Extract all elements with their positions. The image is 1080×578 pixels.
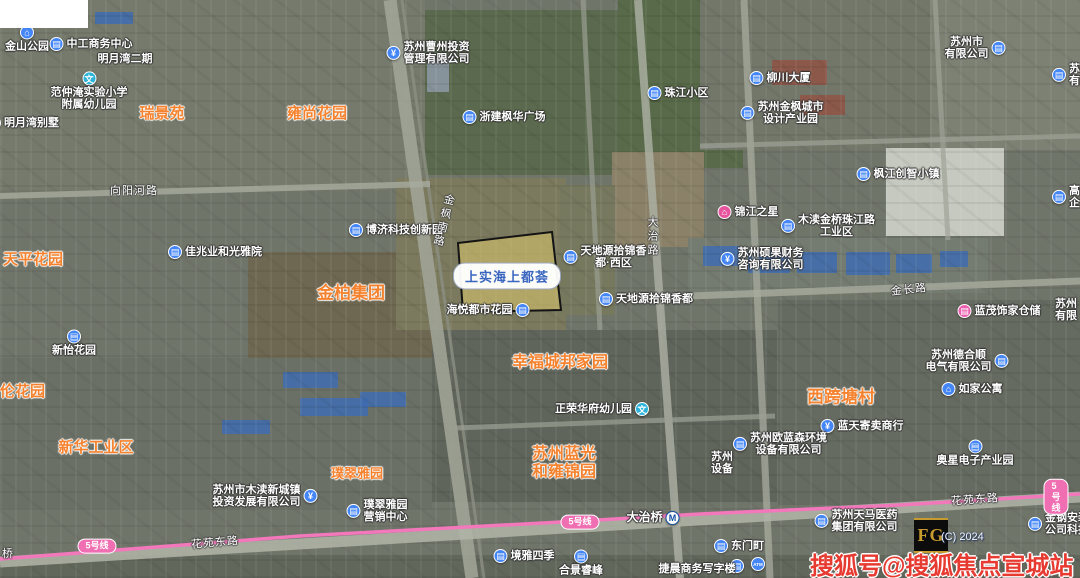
metro-line5-badge-1: 5号线 (77, 539, 116, 554)
poi-zhejianfenghua-text: 浙建枫华广场 (480, 111, 546, 123)
poi-hejingruifeng-text: 合景睿峰 (559, 564, 603, 576)
poi-company-topright[interactable]: ▤苏州市有限公司 (945, 36, 1006, 60)
poi-zhonggongshangwu-text: 中工商务中心 (67, 38, 133, 50)
road-qiao-partial-text: 桥 (2, 548, 14, 560)
building-icon: ▤ (599, 292, 613, 306)
poi-bojikeji-text: 博济科技创新园 (366, 224, 443, 236)
poi-bojikeji[interactable]: ▤博济科技创新园 (349, 223, 443, 237)
estate-xikuatangcun-text: 西跨塘村 (807, 389, 875, 408)
hotel-icon: ⌂ (942, 382, 956, 396)
poi-deheshun[interactable]: ▤苏州德合顺电气有限公司 (926, 349, 1009, 373)
estate-xikuatangcun[interactable]: 西跨塘村 (807, 389, 875, 408)
poi-partial-shebei-text: 苏州设备 (711, 451, 733, 475)
poi-mudutouzi[interactable]: ¥苏州市木渎新城镇投资发展有限公司 (213, 484, 318, 508)
estate-tianpinghuayuan[interactable]: 天平花园 (3, 252, 63, 269)
building-icon: ▤ (815, 514, 829, 528)
building-icon: ▤ (564, 250, 578, 264)
building-icon: ▤ (1028, 517, 1042, 531)
poi-tianmayiyao[interactable]: ▤苏州天马医药集团有限公司 (815, 509, 898, 533)
poi-lanmaocangchu[interactable]: ▤蓝茂饰家仓储 (958, 304, 1041, 318)
road-qiao-partial: 桥 (2, 548, 14, 560)
poi-zhengrongyoueryuan-text: 正荣华府幼儿园 (555, 403, 632, 415)
estate-xingfuchengbang[interactable]: 幸福城邦家园 (512, 354, 608, 372)
building-icon: ▤ (168, 245, 182, 259)
poi-aoxing-text: 奥星电子产业园 (937, 454, 1014, 466)
estate-jinbaijituan-text: 金柏集团 (317, 285, 385, 304)
poi-fanzhongyan-school-text: 范仲淹实验小学附属幼儿园 (51, 86, 128, 110)
finance-icon: ¥ (821, 419, 835, 433)
poi-oulansen[interactable]: ▤苏州欧蓝森环境设备有限公司 (733, 432, 827, 456)
poi-zhejianfenghua[interactable]: ▤浙建枫华广场 (463, 110, 546, 124)
poi-mudugongyequ-text: 木渎金桥珠江路工业区 (798, 214, 875, 238)
station-dazhiqiao[interactable]: M大治桥 (626, 511, 679, 525)
building-icon: ▤ (463, 110, 477, 124)
poi-dongmending[interactable]: ▤东门町 (714, 539, 764, 553)
building-icon: ▤ (995, 354, 1009, 368)
poi-tiandiyuan-text: 天地源拾锦香都 (616, 293, 693, 305)
satellite-map[interactable]: 上实海上都荟 FG (C) 2024 搜狐号@搜狐焦点宣城站 瑞景苑雍尚花园天平… (0, 0, 1080, 578)
estate-xinhuagongyequ[interactable]: 新华工业区 (58, 440, 133, 457)
building-icon: ▤ (67, 329, 81, 343)
poi-zhonggongshangwu[interactable]: ▤中工商务中心 (50, 37, 133, 51)
building-icon: ▤ (494, 549, 508, 563)
building-icon: ▤ (781, 219, 795, 233)
poi-jiechenxiezilou-text: 捷晨商务写字楼 (659, 563, 736, 575)
poi-hejingruifeng[interactable]: ▤合景睿峰 (559, 549, 603, 576)
estate-ruijingyuan-text: 瑞景苑 (139, 106, 184, 123)
building-icon: ▤ (648, 86, 662, 100)
building-icon: ▤ (574, 549, 588, 563)
poi-mudugongyequ[interactable]: ▤木渎金桥珠江路工业区 (781, 214, 875, 238)
estate-yongshanghuayuan-text: 雍尚花园 (287, 106, 347, 123)
metro-line5-badge-2: 5号线 (560, 515, 599, 530)
poi-gaoxinqiye[interactable]: ▤高新企业 (1052, 185, 1080, 209)
poi-company-edge-top[interactable]: ▤苏州有限 (1052, 63, 1080, 87)
poi-mingyuewanbieshu-text: 明月湾别墅 (4, 117, 59, 129)
blank-overlay (0, 0, 88, 28)
poi-tiandiyuan-xiqu-text: 天地源拾锦香都·西区 (581, 245, 647, 269)
poi-zhujiangxiaoqu[interactable]: ▤珠江小区 (648, 86, 709, 100)
poi-shuoguocaiwu[interactable]: ¥苏州硕果财务咨询有限公司 (721, 247, 804, 271)
estate-xingfuchengbang-text: 幸福城邦家园 (512, 354, 608, 372)
atm-icon: ATM (751, 557, 765, 571)
metro-line5-badge-3: 5号线 (1044, 479, 1069, 515)
poi-tiandiyuan-xiqu[interactable]: ▤天地源拾锦香都·西区 (564, 245, 647, 269)
parcel-label-pill[interactable]: 上实海上都荟 (453, 263, 561, 290)
poi-atm[interactable]: ATM (751, 557, 765, 571)
poi-fengjiangchuangzhi-text: 枫江创智小镇 (874, 168, 940, 180)
estate-ruijingyuan[interactable]: 瑞景苑 (139, 106, 184, 123)
poi-gaoxinqiye-text: 高新企业 (1069, 185, 1080, 209)
poi-jinjiangzhixing-text: 锦江之星 (735, 206, 779, 218)
poi-company-edge-mid[interactable]: 苏州有限 (1055, 298, 1077, 322)
poi-haiyuedushi-text: 海悦都市花园 (447, 304, 513, 316)
poi-fengjiangchuangzhi[interactable]: ▤枫江创智小镇 (857, 167, 940, 181)
poi-jinshangongyuan[interactable]: ⌂金山公园 (5, 25, 49, 52)
poi-mudutouzi-text: 苏州市木渎新城镇投资发展有限公司 (213, 484, 301, 508)
poi-xinyihuayuan[interactable]: ▤新怡花园 (52, 329, 96, 356)
poi-lantianjimai-text: 蓝天寄卖商行 (838, 420, 904, 432)
school-icon: 文 (82, 71, 96, 85)
poi-zhengrongyoueryuan[interactable]: 文正荣华府幼儿园 (555, 402, 649, 416)
building-icon: ▤ (1052, 190, 1066, 204)
building-icon: ▤ (750, 71, 764, 85)
estate-lunhuayuan[interactable]: 伦花园 (0, 384, 45, 401)
building-icon: ▤ (968, 439, 982, 453)
building-icon: ▤ (1052, 68, 1066, 82)
poi-jinfengchanyeyuan-text: 苏州金枫城市设计产业园 (758, 101, 824, 125)
building-icon: ▤ (516, 303, 530, 317)
building-icon: ▤ (857, 167, 871, 181)
copyright-text: (C) 2024 (941, 531, 984, 543)
poi-liuchuandasha[interactable]: ▤柳川大厦 (750, 71, 811, 85)
estate-tianpinghuayuan-text: 天平花园 (3, 252, 63, 269)
shop-icon: ▤ (958, 304, 972, 318)
poi-mingyuewanerqi-text: 明月湾二期 (98, 53, 153, 65)
station-dazhiqiao-text: 大治桥 (626, 511, 662, 524)
hotel-icon: ⌂ (718, 205, 732, 219)
road-xiangyanghelu: 向阳河路 (110, 185, 158, 197)
poi-haiyuedushi[interactable]: ▤海悦都市花园 (447, 303, 530, 317)
poi-mingyuewanbieshu[interactable]: ▤明月湾别墅 (0, 116, 59, 130)
building-icon: ▤ (0, 116, 1, 130)
metro-icon: M (666, 511, 680, 525)
poi-company-topright-text: 苏州市有限公司 (945, 36, 989, 60)
estate-suzhoulanguang-text: 苏州蓝光和雍锦园 (532, 445, 596, 480)
sohu-watermark: 搜狐号@搜狐焦点宣城站 (810, 546, 1073, 578)
estate-jinbaijituan[interactable]: 金柏集团 (317, 285, 385, 304)
poi-caozhoutouzi[interactable]: ¥苏州曹州投资管理有限公司 (387, 41, 470, 65)
poi-jiazhaoye[interactable]: ▤佳兆业和光雅院 (168, 245, 262, 259)
poi-pucuiyingxiao-text: 璞翠雅园营销中心 (364, 499, 408, 523)
building-icon: ▤ (992, 41, 1006, 55)
poi-liuchuandasha-text: 柳川大厦 (767, 72, 811, 84)
finance-icon: ¥ (721, 252, 735, 266)
road-dazhilu-text: 大治路 (646, 216, 658, 258)
poi-pucuiyingxiao[interactable]: ▤璞翠雅园营销中心 (347, 499, 408, 523)
poi-deheshun-text: 苏州德合顺电气有限公司 (926, 349, 992, 373)
poi-rujiagongyu-text: 如家公寓 (959, 383, 1003, 395)
poi-rujiagongyu[interactable]: ⌂如家公寓 (942, 382, 1003, 396)
poi-zhujiangxiaoqu-text: 珠江小区 (665, 87, 709, 99)
poi-xinyihuayuan-text: 新怡花园 (52, 344, 96, 356)
poi-jingyasiji-text: 境雅四季 (511, 550, 555, 562)
building-icon: ▤ (50, 37, 64, 51)
poi-caozhoutouzi-text: 苏州曹州投资管理有限公司 (404, 41, 470, 65)
poi-dongmending-text: 东门町 (731, 540, 764, 552)
estate-yongshanghuayuan[interactable]: 雍尚花园 (287, 106, 347, 123)
estate-pucuiyayuan[interactable]: 璞翠雅园 (331, 467, 383, 481)
poi-lanmaocangchu-text: 蓝茂饰家仓储 (975, 305, 1041, 317)
poi-tianmayiyao-text: 苏州天马医药集团有限公司 (832, 509, 898, 533)
poi-jiazhaoye-text: 佳兆业和光雅院 (185, 246, 262, 258)
poi-mingyuewanerqi[interactable]: 明月湾二期 (98, 53, 153, 65)
estate-pucuiyayuan-text: 璞翠雅园 (331, 467, 383, 481)
estate-suzhoulanguang[interactable]: 苏州蓝光和雍锦园 (532, 445, 596, 480)
building-icon: ▤ (741, 106, 755, 120)
finance-icon: ¥ (387, 46, 401, 60)
estate-xinhuagongyequ-text: 新华工业区 (58, 440, 133, 457)
building-icon: ▤ (347, 504, 361, 518)
school-icon: 文 (635, 402, 649, 416)
poi-lantianjimai[interactable]: ¥蓝天寄卖商行 (821, 419, 904, 433)
building-icon: ▤ (714, 539, 728, 553)
poi-jingang-text: 金钢安装公司科技 (1045, 512, 1080, 536)
poi-tiandiyuan[interactable]: ▤天地源拾锦香都 (599, 292, 693, 306)
poi-aoxing[interactable]: ▤奥星电子产业园 (937, 439, 1014, 466)
poi-company-edge-mid-text: 苏州有限 (1055, 298, 1077, 322)
building-icon: ▤ (733, 437, 747, 451)
poi-jiechenxiezilou[interactable]: 捷晨商务写字楼 (659, 563, 736, 575)
poi-oulansen-text: 苏州欧蓝森环境设备有限公司 (750, 432, 827, 456)
building-icon: ▤ (349, 223, 363, 237)
poi-jinjiangzhixing[interactable]: ⌂锦江之星 (718, 205, 779, 219)
poi-partial-shebei[interactable]: 苏州设备 (711, 451, 733, 475)
poi-fanzhongyan-school[interactable]: 文范仲淹实验小学附属幼儿园 (51, 71, 128, 110)
poi-jinshangongyuan-text: 金山公园 (5, 40, 49, 52)
poi-jingyasiji[interactable]: ▤境雅四季 (494, 549, 555, 563)
poi-jingang[interactable]: ▤金钢安装公司科技 (1028, 512, 1080, 536)
poi-company-edge-top-text: 苏州有限 (1069, 63, 1080, 87)
road-xiangyanghelu-text: 向阳河路 (110, 185, 158, 197)
finance-icon: ¥ (304, 489, 318, 503)
road-dazhilu: 大治路 (646, 216, 658, 258)
estate-lunhuayuan-text: 伦花园 (0, 384, 45, 401)
poi-jinfengchanyeyuan[interactable]: ▤苏州金枫城市设计产业园 (741, 101, 824, 125)
poi-shuoguocaiwu-text: 苏州硕果财务咨询有限公司 (738, 247, 804, 271)
